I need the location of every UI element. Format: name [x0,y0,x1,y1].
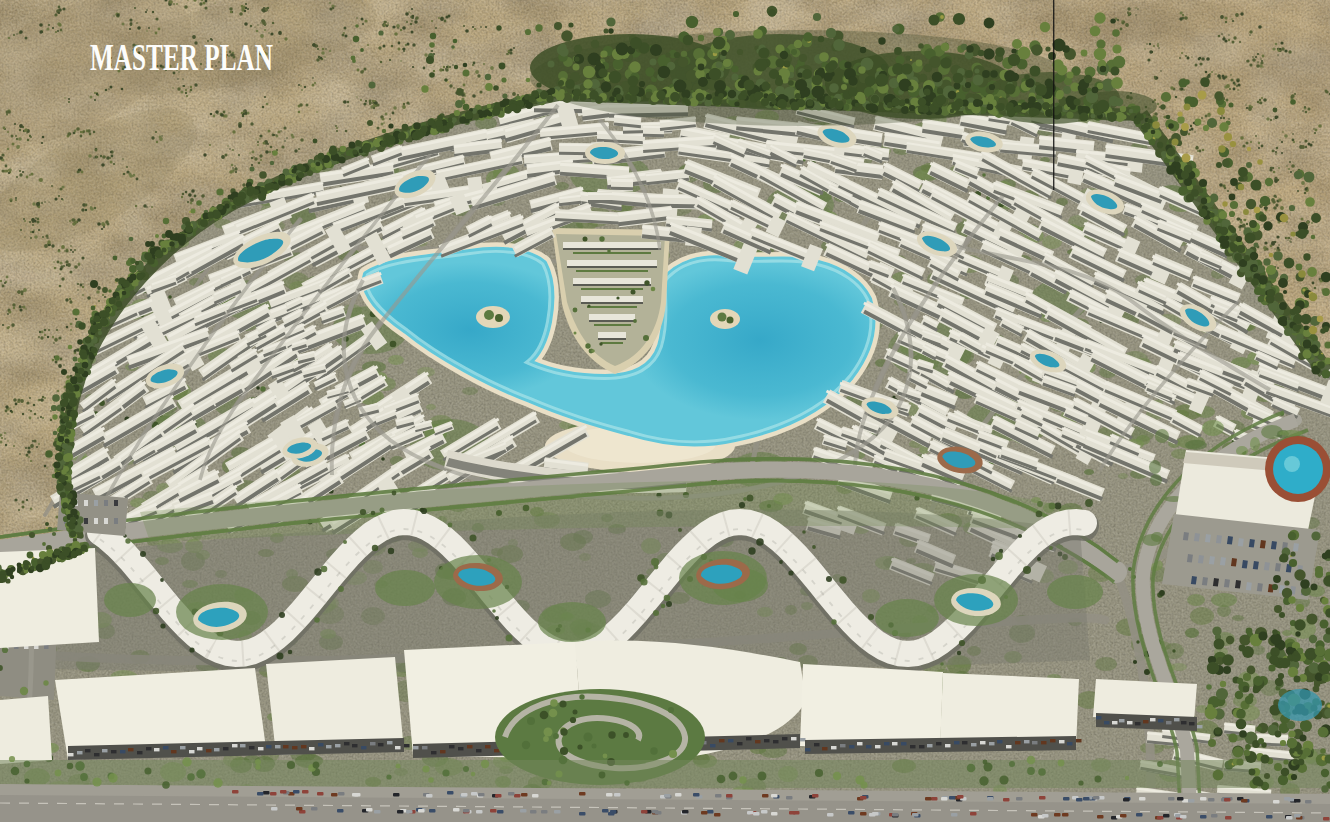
svg-text:MASTER PLAN: MASTER PLAN [90,37,273,78]
